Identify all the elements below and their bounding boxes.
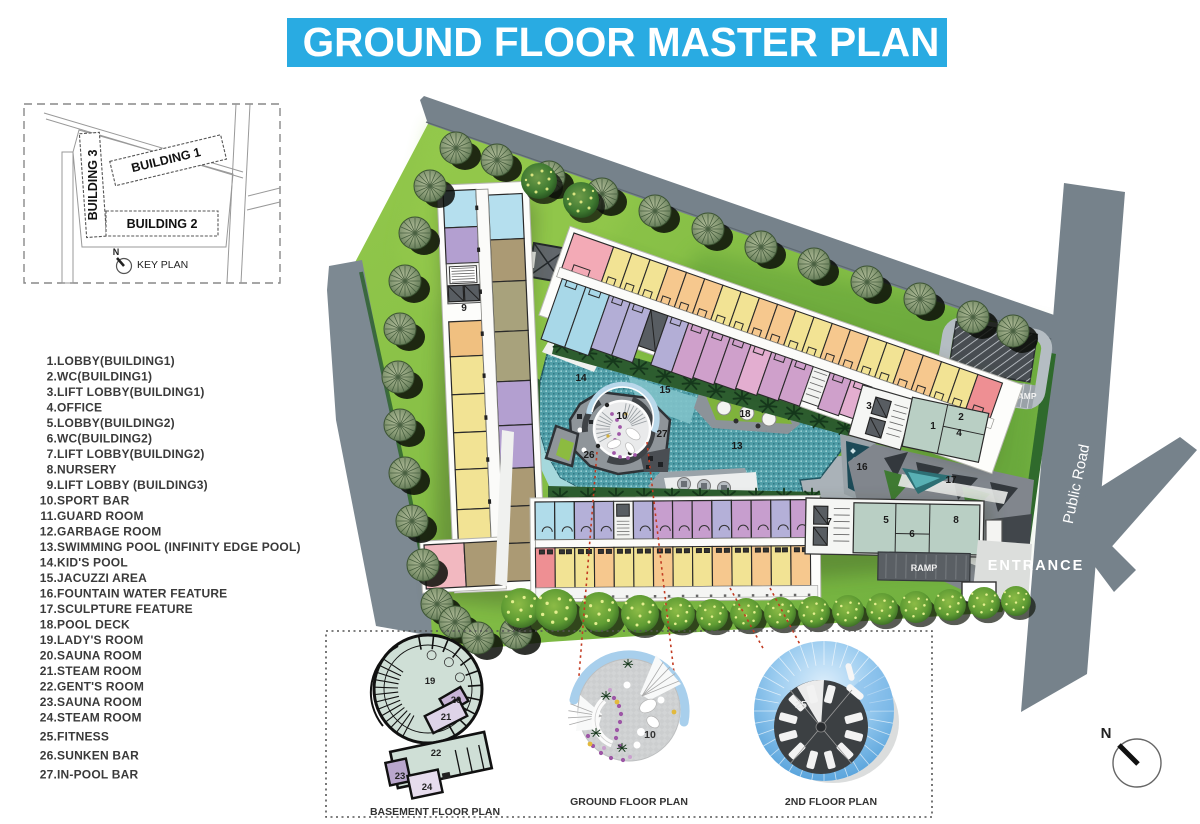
svg-text:15: 15 (659, 385, 671, 396)
svg-text:21.: 21. (40, 664, 57, 678)
svg-text:LIFT LOBBY(BUILDING1): LIFT LOBBY(BUILDING1) (57, 385, 205, 399)
svg-text:22: 22 (431, 748, 442, 759)
svg-text:N: N (1101, 725, 1112, 742)
svg-text:LIFT LOBBY (BUILDING3): LIFT LOBBY (BUILDING3) (57, 478, 208, 492)
svg-text:KID'S POOL: KID'S POOL (57, 556, 128, 570)
svg-text:GARBAGE ROOM: GARBAGE ROOM (57, 525, 161, 539)
svg-text:13: 13 (731, 441, 743, 452)
svg-text:18.: 18. (40, 618, 57, 632)
svg-text:14: 14 (575, 373, 587, 384)
svg-text:17: 17 (945, 475, 957, 486)
svg-text:10: 10 (616, 411, 628, 422)
svg-text:24: 24 (422, 782, 433, 793)
svg-text:LIFT LOBBY(BUILDING2): LIFT LOBBY(BUILDING2) (57, 447, 205, 461)
svg-text:IN-POOL BAR: IN-POOL BAR (57, 768, 138, 782)
svg-text:16.: 16. (40, 587, 57, 601)
svg-text:24.: 24. (40, 711, 57, 725)
svg-text:SUNKEN BAR: SUNKEN BAR (57, 749, 139, 763)
svg-text:22.: 22. (40, 680, 57, 694)
svg-text:GROUND FLOOR MASTER PLAN: GROUND FLOOR MASTER PLAN (303, 19, 940, 65)
svg-text:11.: 11. (40, 509, 57, 523)
svg-text:LADY'S ROOM: LADY'S ROOM (57, 633, 143, 647)
svg-text:17.: 17. (40, 602, 57, 616)
svg-text:BUILDING 3: BUILDING 3 (86, 150, 100, 221)
svg-text:21: 21 (441, 712, 452, 723)
svg-text:25.: 25. (40, 730, 57, 744)
svg-text:14.: 14. (40, 556, 57, 570)
svg-text:10: 10 (644, 729, 656, 741)
svg-text:20: 20 (451, 695, 462, 706)
svg-text:20.: 20. (40, 649, 57, 663)
svg-text:2: 2 (958, 412, 964, 423)
svg-text:WC(BUILDING2): WC(BUILDING2) (57, 432, 152, 446)
svg-text:7: 7 (826, 517, 832, 528)
svg-text:BUILDING 2: BUILDING 2 (127, 217, 198, 231)
svg-text:OFFICE: OFFICE (57, 401, 102, 415)
svg-text:3.: 3. (47, 385, 57, 399)
svg-text:NURSERY: NURSERY (57, 463, 117, 477)
svg-text:4.: 4. (47, 401, 57, 415)
svg-text:GUARD ROOM: GUARD ROOM (57, 509, 144, 523)
svg-text:4: 4 (956, 428, 962, 439)
svg-text:1.: 1. (47, 354, 57, 368)
svg-text:SAUNA ROOM: SAUNA ROOM (57, 695, 142, 709)
svg-text:18: 18 (739, 409, 751, 420)
svg-text:STEAM ROOM: STEAM ROOM (57, 711, 142, 725)
svg-text:FOUNTAIN WATER FEATURE: FOUNTAIN WATER FEATURE (57, 587, 227, 601)
svg-text:ENTRANCE: ENTRANCE (988, 558, 1085, 574)
svg-text:SWIMMING POOL (INFINITY EDGE P: SWIMMING POOL (INFINITY EDGE POOL) (57, 540, 301, 554)
svg-text:19.: 19. (40, 633, 57, 647)
svg-text:9: 9 (461, 303, 467, 314)
svg-text:GENT'S ROOM: GENT'S ROOM (57, 680, 144, 694)
svg-text:6.: 6. (47, 432, 57, 446)
svg-text:1: 1 (930, 421, 936, 432)
svg-text:23.: 23. (40, 695, 57, 709)
svg-text:10.: 10. (40, 494, 57, 508)
svg-text:JACUZZI AREA: JACUZZI AREA (57, 571, 147, 585)
svg-text:WC(BUILDING1): WC(BUILDING1) (57, 370, 152, 384)
svg-text:N: N (113, 247, 120, 257)
svg-text:8.: 8. (47, 463, 57, 477)
svg-text:8: 8 (953, 515, 959, 526)
svg-text:26.: 26. (40, 749, 57, 763)
svg-text:GROUND FLOOR PLAN: GROUND FLOOR PLAN (570, 796, 688, 808)
svg-text:12.: 12. (40, 525, 57, 539)
svg-text:9.: 9. (47, 478, 57, 492)
svg-text:3: 3 (866, 401, 872, 412)
svg-text:POOL DECK: POOL DECK (57, 618, 130, 632)
svg-text:19: 19 (425, 676, 436, 687)
svg-text:5: 5 (883, 515, 889, 526)
svg-text:7.: 7. (47, 447, 57, 461)
svg-text:LOBBY(BUILDING2): LOBBY(BUILDING2) (57, 416, 175, 430)
svg-text:2ND FLOOR PLAN: 2ND FLOOR PLAN (785, 796, 877, 808)
svg-text:SCULPTURE FEATURE: SCULPTURE FEATURE (57, 602, 193, 616)
svg-text:23: 23 (395, 771, 406, 782)
svg-text:SAUNA ROOM: SAUNA ROOM (57, 649, 142, 663)
svg-text:5.: 5. (47, 416, 57, 430)
svg-text:13.: 13. (40, 540, 57, 554)
svg-text:16: 16 (856, 462, 868, 473)
svg-text:25: 25 (795, 699, 807, 711)
svg-text:26: 26 (583, 450, 595, 461)
svg-text:FITNESS: FITNESS (57, 730, 109, 744)
svg-text:27: 27 (656, 429, 668, 440)
svg-text:KEY PLAN: KEY PLAN (137, 259, 188, 271)
svg-text:2.: 2. (47, 370, 57, 384)
svg-text:STEAM ROOM: STEAM ROOM (57, 664, 142, 678)
svg-text:27.: 27. (40, 768, 57, 782)
svg-text:LOBBY(BUILDING1): LOBBY(BUILDING1) (57, 354, 175, 368)
svg-text:BASEMENT FLOOR PLAN: BASEMENT FLOOR PLAN (370, 806, 500, 818)
svg-text:SPORT BAR: SPORT BAR (57, 494, 130, 508)
svg-text:RAMP: RAMP (911, 563, 938, 573)
svg-text:15.: 15. (40, 571, 57, 585)
svg-text:6: 6 (909, 529, 915, 540)
